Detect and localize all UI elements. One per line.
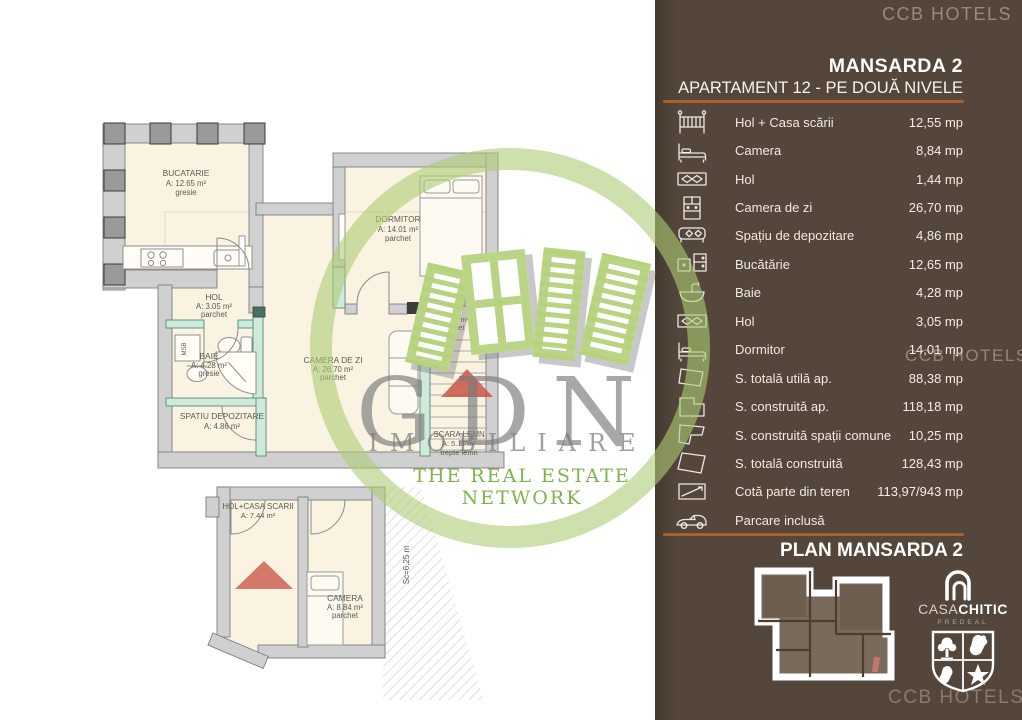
land-share-icon: [671, 478, 713, 506]
room-area-value: 26,70 mp: [909, 200, 963, 215]
floor-plan-drawing: MSB BUCATARIE A: 12.65 m² gresie HOL A: …: [0, 0, 655, 720]
room-label: CAMERA: [327, 593, 363, 603]
room-legend: Hol + Casa scării 12,55 mp Camera 8,84 m…: [655, 108, 1022, 535]
rug-icon: [671, 307, 713, 335]
ccb-crest-icon: [928, 629, 998, 695]
scale-note: Sc=6,25 m: [402, 545, 411, 584]
room-area: A: 5.11 m²: [442, 439, 477, 448]
room-label: Dormitor: [735, 342, 785, 357]
room-area-value: 1,44 mp: [916, 172, 963, 187]
divider: [663, 100, 964, 103]
room-label: HOL: [205, 292, 223, 302]
room-area-value: 118,18 mp: [903, 399, 963, 414]
section-hatch: [383, 487, 484, 700]
page-title: MANSARDA 2: [655, 55, 963, 78]
legend-row: S. construită spații comune 10,25 mp: [655, 421, 1022, 449]
legend-row: Hol 3,05 mp: [655, 307, 1022, 335]
room-area: A: 4.86 m²: [204, 422, 240, 431]
room-area: A: 14.01 m²: [378, 225, 419, 234]
room-label: S. construită spații comune: [735, 428, 891, 443]
rug-icon: [671, 165, 713, 193]
room-label: S. totală utilă ap.: [735, 371, 832, 386]
pillar: [253, 307, 265, 317]
room-area-value: 88,38 mp: [909, 371, 963, 386]
room-floor: parchet: [320, 373, 347, 382]
floor-plan-lower: HOL+CASA SCARII A: 7.44 m² CAMERA A: 8.8…: [206, 487, 484, 700]
room-floor: parchet: [332, 611, 359, 620]
area-outline-icon: [671, 364, 713, 392]
room-area-value: 4,86 mp: [916, 228, 963, 243]
legend-row: Cotă parte din teren 113,97/943 mp: [655, 478, 1022, 506]
room-label: Baie: [735, 285, 761, 300]
legend-row: Parcare inclusă: [655, 506, 1022, 534]
divider: [663, 533, 964, 536]
room-label: S. totală construită: [735, 456, 843, 471]
room-area-value: 12,65 mp: [909, 257, 963, 272]
room-area-value: 8,84 mp: [916, 143, 963, 158]
room-floor: parchet: [201, 310, 228, 319]
room-label: BUCATARIE: [163, 168, 210, 178]
room-label: Hol: [735, 314, 755, 329]
room-label: Parcare inclusă: [735, 513, 825, 528]
ccb-hotels-watermark: CCB HOTELS: [882, 4, 1012, 25]
room-area-value: 10,25 mp: [909, 428, 963, 443]
room-label: Hol + Casa scării: [735, 115, 834, 130]
legend-row: Baie 4,28 mp: [655, 279, 1022, 307]
room-floor: gresie: [175, 188, 196, 197]
crib-icon: [671, 108, 713, 136]
area-outline-icon: [671, 449, 713, 477]
room-label: HOL: [444, 306, 461, 315]
page-subtitle: APARTAMENT 12 - PE DOUĂ NIVELE: [655, 79, 963, 98]
room-floor: parchet: [385, 234, 412, 243]
area-outline-icon: [671, 393, 713, 421]
room-area-value: 3,05 mp: [916, 314, 963, 329]
room-label: Camera de zi: [735, 200, 812, 215]
bed-icon: [671, 137, 713, 165]
cabinet-icon: [671, 194, 713, 222]
room-area: A: 12.65 m²: [166, 179, 207, 188]
room-label: HOL+CASA SCARII: [222, 502, 293, 511]
legend-row: Bucătărie 12,65 mp: [655, 250, 1022, 278]
room-label: SCARA LEMN: [433, 430, 485, 439]
ccb-hotels-watermark: CCB HOTELS: [888, 687, 1018, 709]
kitchen-fixtures: [123, 246, 252, 269]
logo-predeal: PREDEAL: [898, 619, 1022, 626]
plan-heading: PLAN MANSARDA 2: [655, 540, 963, 562]
bed-icon: [671, 336, 713, 364]
room-floor: parchet: [439, 323, 465, 332]
legend-row: Camera 8,84 mp: [655, 136, 1022, 164]
sofa: [389, 331, 418, 414]
room-label: Hol: [735, 172, 755, 187]
sink-icon: [671, 279, 713, 307]
plan-thumbnail: [746, 562, 896, 684]
room-area-value: 113,97/943 mp: [877, 484, 963, 499]
legend-row: Spațiu de depozitare 4,86 mp: [655, 222, 1022, 250]
logo-chitic: CHITIC: [958, 601, 1008, 617]
kitchen-icon: [671, 250, 713, 278]
room-area-value: 128,43 mp: [902, 456, 963, 471]
room-area: A: 7.44 m²: [241, 511, 276, 520]
legend-row: S. totală construită 128,43 mp: [655, 449, 1022, 477]
room-label: BAIE: [199, 351, 218, 361]
casa-chitic-arch-icon: [939, 565, 979, 601]
room-label: Spațiu de depozitare: [735, 228, 854, 243]
room-label: S. construită ap.: [735, 399, 829, 414]
room-label: Camera: [735, 143, 781, 158]
storage-bench-icon: [671, 222, 713, 250]
room-area-value: 12,55 mp: [909, 115, 963, 130]
casa-chitic-logo: CASACHITIC: [898, 601, 1022, 617]
legend-row: Hol + Casa scării 12,55 mp: [655, 108, 1022, 136]
room-label: DORMITOR: [375, 214, 420, 224]
legend-row: Camera de zi 26,70 mp: [655, 193, 1022, 221]
room-area-value: 4,28 mp: [916, 285, 963, 300]
floor-plan-upper: MSB BUCATARIE A: 12.65 m² gresie HOL A: …: [103, 123, 504, 468]
room-label: Bucătărie: [735, 257, 790, 272]
room-floor: gresie: [198, 369, 219, 378]
logo-casa: CASA: [918, 601, 958, 617]
legend-row: Hol 1,44 mp: [655, 165, 1022, 193]
room-label: CAMERA DE ZI: [303, 355, 362, 365]
car-icon: [671, 506, 713, 534]
room-floor: trepte lemn: [440, 448, 478, 457]
room-label: Cotă parte din teren: [735, 484, 850, 499]
pillar: [407, 302, 419, 314]
brochure-page: MSB BUCATARIE A: 12.65 m² gresie HOL A: …: [0, 0, 1022, 720]
ccb-hotels-watermark: CCB HOTELS: [905, 346, 1022, 366]
bed: [420, 176, 482, 276]
washing-machine-label: MSB: [182, 342, 188, 355]
legend-row: S. construită ap. 118,18 mp: [655, 392, 1022, 420]
room-label: SPATIU DEPOZITARE: [180, 411, 265, 421]
area-outline-icon: [671, 421, 713, 449]
legend-row: S. totală utilă ap. 88,38 mp: [655, 364, 1022, 392]
